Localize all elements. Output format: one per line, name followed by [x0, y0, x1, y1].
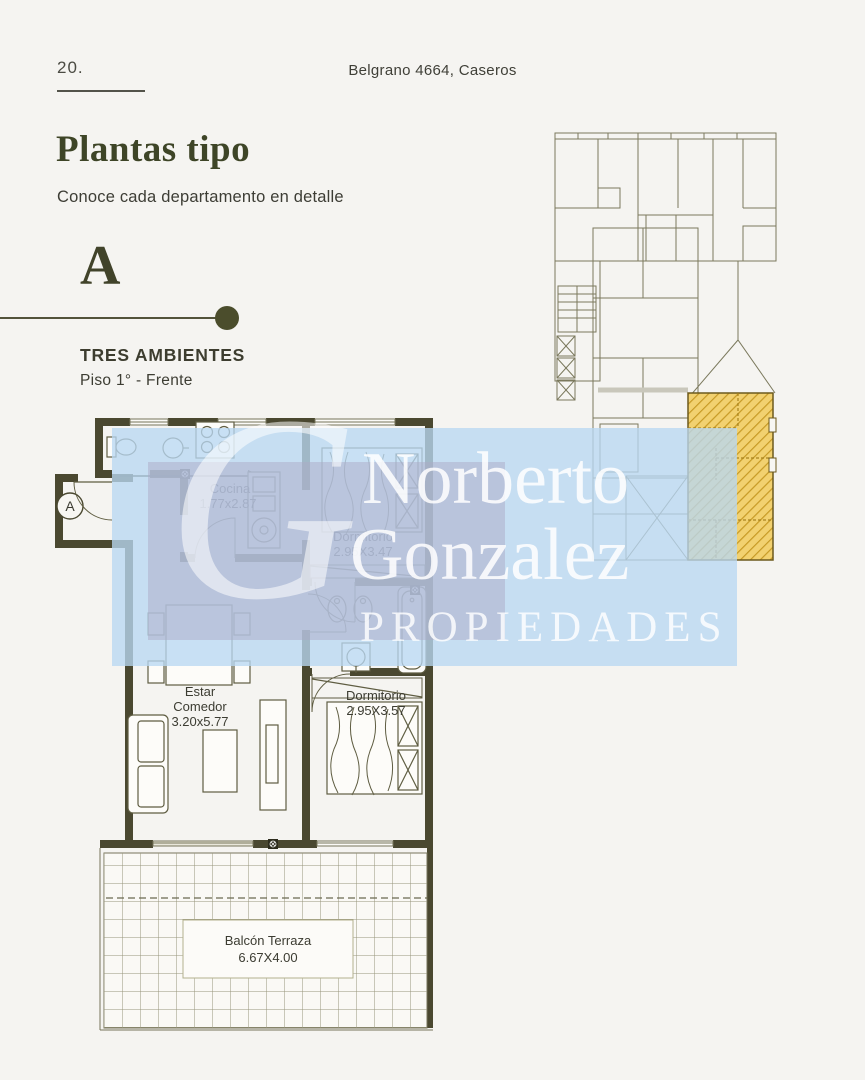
coffee-table-icon: [203, 730, 237, 792]
label-cocina-dims: 1.77x2.87: [199, 496, 256, 511]
page-number-rule: [57, 90, 145, 92]
balcony-label-box: [183, 920, 353, 978]
laundry-sink-icon: [163, 438, 189, 458]
elevator-shafts-icon: [557, 336, 575, 400]
unit-floor-label: Piso 1° - Frente: [80, 372, 193, 390]
page-title: Plantas tipo: [56, 128, 250, 171]
bed-icon: [322, 448, 422, 534]
unit-letter: A: [80, 234, 120, 298]
washbasin-icon: [342, 643, 370, 673]
toilet-icon: [107, 437, 136, 457]
unit-type-label: TRES AMBIENTES: [80, 345, 245, 366]
apartment-floor-plan: A: [50, 415, 440, 1040]
furniture: [107, 422, 426, 813]
address: Belgrano 4664, Caseros: [0, 62, 865, 79]
keyplan-highlighted-unit: [688, 393, 776, 560]
label-dormitorio2: Dormitorio: [346, 688, 406, 703]
label-balcon: Balcón Terraza: [225, 933, 312, 948]
label-estar-1: Estar: [185, 684, 216, 699]
entrance-label: A: [65, 498, 75, 514]
building-key-plan: [538, 118, 865, 580]
label-cocina: Cocina: [210, 481, 251, 496]
label-dormitorio1-dims: 2.95X3.47: [333, 544, 392, 559]
label-estar-dims: 3.20x5.77: [171, 714, 228, 729]
kitchen-door-icon: [195, 518, 235, 558]
dining-table-icon: [148, 605, 250, 685]
sofa-icon: [128, 715, 168, 813]
label-estar-2: Comedor: [173, 699, 227, 714]
label-balcon-dims: 6.67X4.00: [238, 950, 297, 965]
bathtub-icon: [398, 587, 426, 673]
closet-icon: [310, 565, 425, 578]
label-dormitorio2-dims: 2.95X3.57: [346, 703, 405, 718]
unit-rule-line: [0, 317, 218, 319]
tv-unit-icon: [260, 700, 286, 810]
label-dormitorio1: Dormitorio: [333, 529, 393, 544]
page-subtitle: Conoce cada departamento en detalle: [57, 188, 344, 207]
stove-icon: [196, 422, 234, 458]
toilet2-icon: [354, 596, 372, 622]
unit-rule-dot: [215, 306, 239, 330]
